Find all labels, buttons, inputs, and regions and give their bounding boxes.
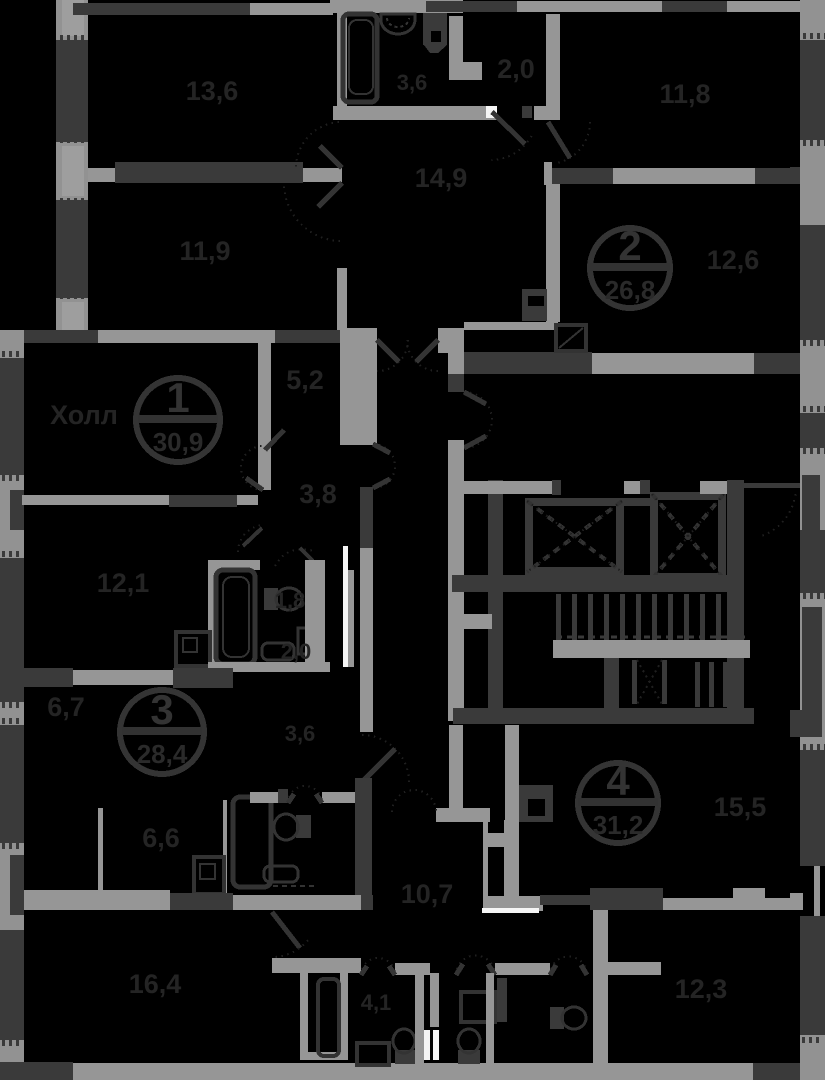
svg-text:16,4: 16,4 (129, 969, 182, 999)
svg-text:13,6: 13,6 (186, 76, 239, 106)
svg-text:1,8: 1,8 (275, 588, 306, 613)
svg-text:Холл: Холл (50, 400, 118, 430)
svg-text:4,1: 4,1 (361, 990, 392, 1015)
svg-text:12,1: 12,1 (97, 568, 150, 598)
svg-text:2,0: 2,0 (497, 54, 535, 84)
svg-text:10,7: 10,7 (401, 879, 454, 909)
svg-text:3,6: 3,6 (285, 721, 316, 746)
svg-text:30,9: 30,9 (153, 427, 204, 457)
svg-text:1: 1 (166, 374, 189, 421)
svg-text:3: 3 (150, 686, 173, 733)
svg-text:15,5: 15,5 (714, 792, 767, 822)
svg-text:2,0: 2,0 (281, 639, 312, 664)
svg-text:11,9: 11,9 (179, 236, 230, 266)
svg-text:4: 4 (606, 757, 630, 804)
svg-text:26,8: 26,8 (605, 275, 656, 305)
svg-text:3,6: 3,6 (397, 70, 428, 95)
svg-text:12,3: 12,3 (675, 974, 728, 1004)
svg-text:31,2: 31,2 (593, 810, 644, 840)
svg-text:6,6: 6,6 (142, 823, 180, 853)
svg-text:5,2: 5,2 (286, 365, 324, 395)
svg-text:2: 2 (618, 222, 641, 269)
svg-text:11,8: 11,8 (659, 79, 710, 109)
svg-text:28,4: 28,4 (137, 739, 188, 769)
svg-text:14,9: 14,9 (415, 163, 468, 193)
svg-text:3,8: 3,8 (299, 479, 337, 509)
svg-text:12,6: 12,6 (707, 245, 760, 275)
svg-text:6,7: 6,7 (47, 692, 85, 722)
